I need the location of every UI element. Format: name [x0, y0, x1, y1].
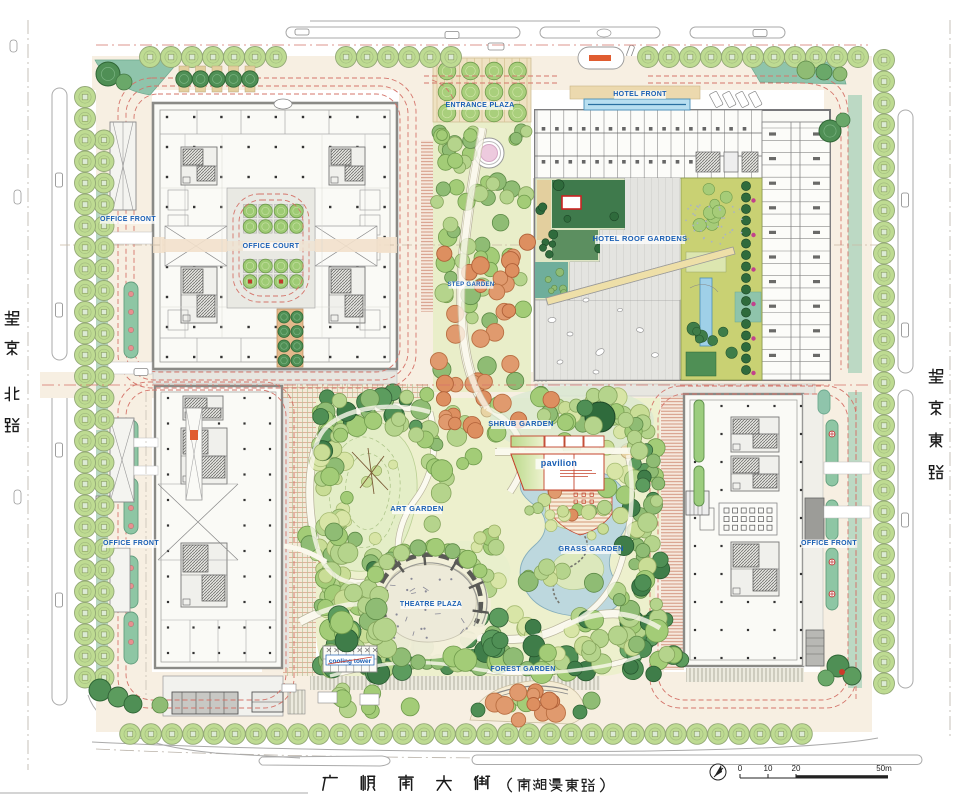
svg-text:0: 0: [738, 764, 743, 773]
svg-text:THEATRE PLAZA: THEATRE PLAZA: [400, 601, 462, 608]
svg-text:50m: 50m: [876, 764, 892, 773]
svg-text:FOREST GARDEN: FOREST GARDEN: [490, 666, 555, 673]
svg-text:OFFICE FRONT: OFFICE FRONT: [801, 540, 857, 547]
svg-text:20: 20: [792, 764, 801, 773]
svg-text:pavilion: pavilion: [541, 458, 577, 468]
svg-text:ART GARDEN: ART GARDEN: [390, 504, 444, 513]
svg-text:cooling tower: cooling tower: [329, 658, 372, 665]
svg-text:OFFICE FRONT: OFFICE FRONT: [100, 216, 156, 223]
svg-text:STEP GARDEN: STEP GARDEN: [447, 282, 494, 288]
svg-text:OFFICE COURT: OFFICE COURT: [243, 243, 300, 250]
svg-text:GRASS GARDEN: GRASS GARDEN: [558, 544, 623, 553]
svg-text:OFFICE FRONT: OFFICE FRONT: [103, 540, 159, 547]
svg-text:HOTEL FRONT: HOTEL FRONT: [613, 91, 667, 98]
svg-text:SHRUB GARDEN: SHRUB GARDEN: [488, 419, 553, 428]
svg-text:HOTEL ROOF GARDENS: HOTEL ROOF GARDENS: [593, 234, 688, 243]
svg-text:ENTRANCE PLAZA: ENTRANCE PLAZA: [445, 102, 514, 109]
svg-text:10: 10: [764, 764, 773, 773]
